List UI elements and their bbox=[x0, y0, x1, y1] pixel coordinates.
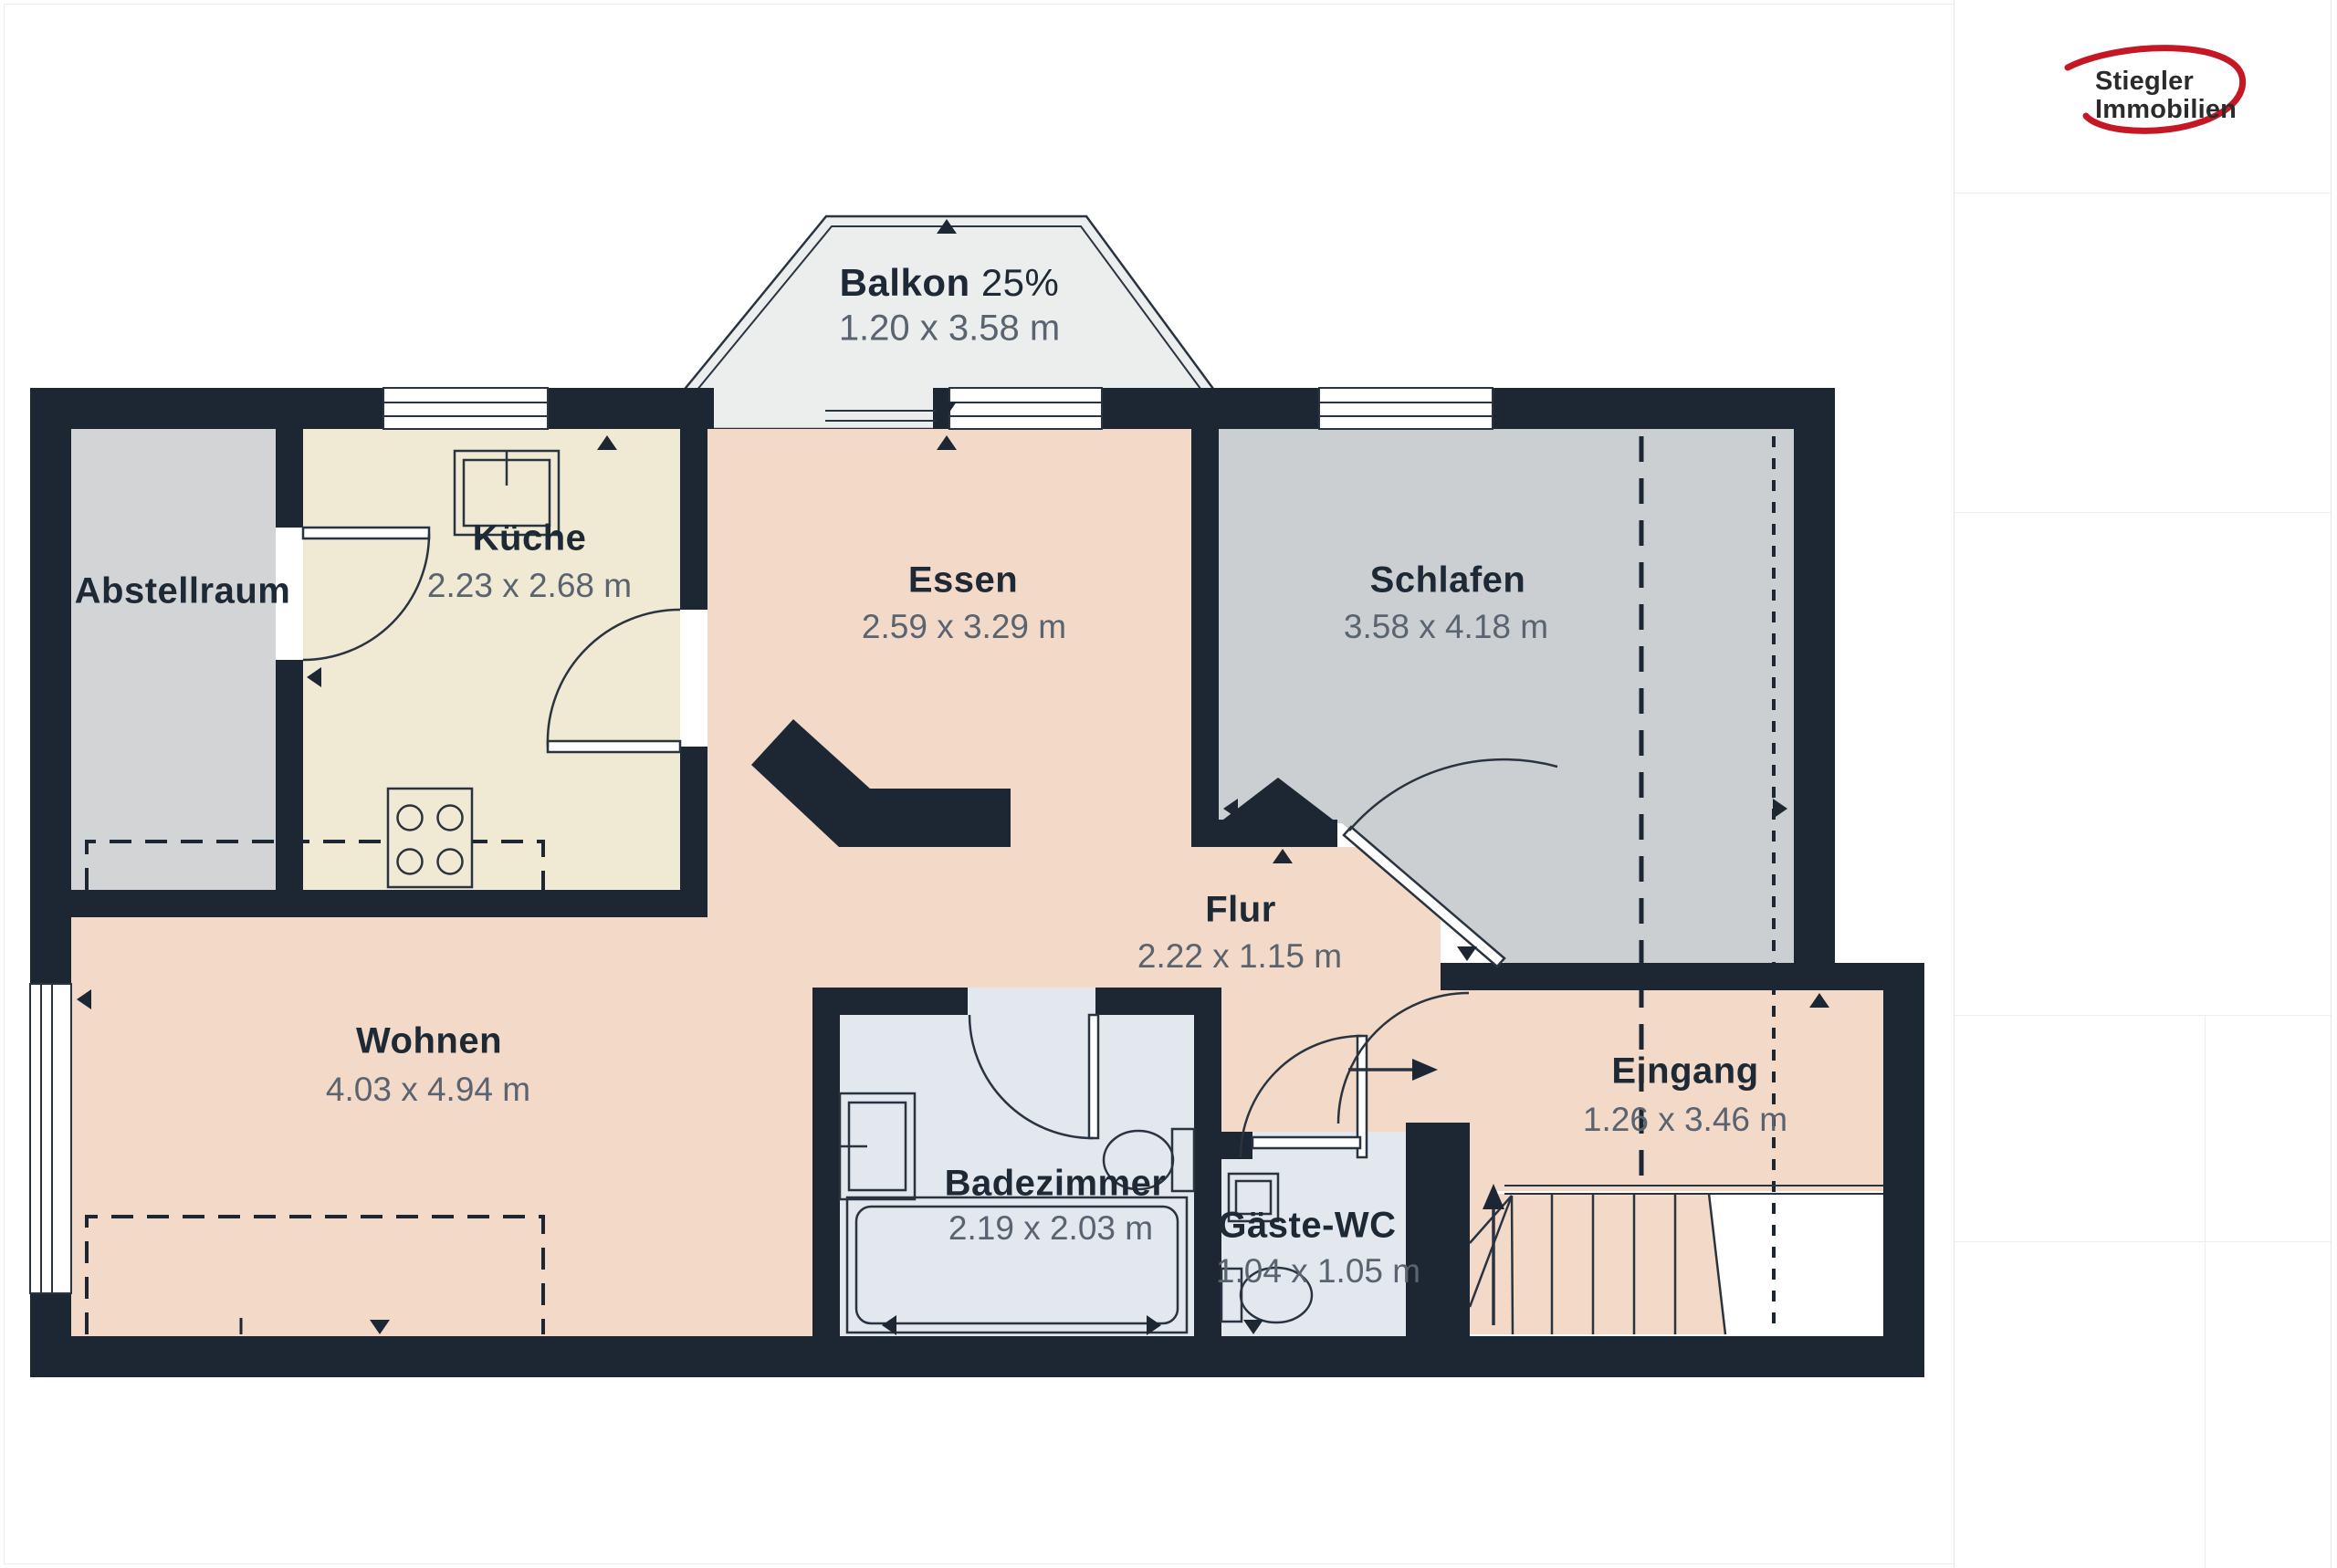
room-dim-schlafen: 3.58 x 4.18 m bbox=[1344, 608, 1548, 646]
stiegler-immobilien-logo: Stiegler Immobilien bbox=[2059, 27, 2278, 155]
wall-wc-stair bbox=[1406, 1123, 1470, 1336]
wall-right-entry bbox=[1883, 963, 1924, 1377]
room-label-kueche: Küche bbox=[473, 518, 587, 559]
wall-kitchen-bottom bbox=[71, 890, 707, 917]
logo-text-line1: Stiegler bbox=[2095, 68, 2237, 96]
room-dim-balkon: 1.20 x 3.58 m bbox=[839, 308, 1060, 350]
floorplan-page: Balkon 25% 1.20 x 3.58 m Abstellraum Küc… bbox=[0, 0, 2337, 1568]
room-label-abstellraum: Abstellraum bbox=[75, 571, 291, 612]
wall-bath-top-right bbox=[1095, 988, 1221, 1015]
wall-storage-kitchen-b bbox=[276, 660, 303, 890]
bedroom-window bbox=[1319, 388, 1493, 429]
sidebar-vertical-divider bbox=[2205, 1015, 2206, 1568]
room-dim-kueche: 2.23 x 2.68 m bbox=[427, 567, 632, 605]
living-window bbox=[30, 984, 71, 1293]
room-label-balkon: Balkon 25% bbox=[840, 261, 1060, 305]
room-dim-essen: 2.59 x 3.29 m bbox=[862, 608, 1066, 646]
stair-winder bbox=[1512, 1196, 1513, 1334]
wall-storage-kitchen-a bbox=[276, 429, 303, 528]
wall-top-left bbox=[30, 388, 714, 429]
sidebar-divider bbox=[1954, 193, 2331, 193]
wall-bedroom-bottom bbox=[1497, 963, 1924, 990]
room-dim-badezimmer: 2.19 x 2.03 m bbox=[948, 1209, 1153, 1248]
logo-text-line2: Immobilien bbox=[2095, 96, 2237, 124]
kitchen-window bbox=[383, 388, 548, 429]
wall-kitchen-dining-b bbox=[680, 747, 707, 890]
bathroom-floor bbox=[812, 988, 1221, 1336]
living-floor bbox=[71, 917, 812, 1336]
wall-kitchen-dining-a bbox=[680, 429, 707, 610]
entry-door-floor bbox=[1441, 990, 1470, 1123]
room-label-eingang: Eingang bbox=[1611, 1051, 1758, 1092]
dining-floor bbox=[707, 429, 1191, 988]
sidebar-divider bbox=[1954, 1015, 2331, 1016]
room-label-gaeste-wc: Gäste-WC bbox=[1218, 1206, 1396, 1247]
dining-window bbox=[949, 388, 1102, 429]
room-dim-wohnen: 4.03 x 4.94 m bbox=[326, 1071, 530, 1109]
wall-wc-top bbox=[1221, 1132, 1252, 1159]
stair-floor bbox=[1470, 1194, 1725, 1334]
logo-text: Stiegler Immobilien bbox=[2095, 68, 2237, 125]
wall-bath-top-left bbox=[812, 988, 968, 1015]
room-dim-gaeste-wc: 1.04 x 1.05 m bbox=[1216, 1252, 1420, 1291]
wall-bath-left bbox=[812, 988, 840, 1336]
room-label-wohnen: Wohnen bbox=[356, 1021, 502, 1062]
room-label-flur: Flur bbox=[1205, 890, 1276, 931]
wall-dining-bedroom bbox=[1191, 429, 1219, 826]
storage-floor bbox=[71, 429, 276, 890]
wall-hall-top bbox=[1191, 820, 1337, 847]
sidebar-divider bbox=[1954, 1241, 2331, 1242]
wall-entry-jamb bbox=[1441, 963, 1497, 990]
stair-void bbox=[1709, 1194, 1883, 1334]
room-label-essen: Essen bbox=[908, 560, 1018, 601]
wall-right-main bbox=[1794, 388, 1835, 990]
room-dim-flur: 2.22 x 1.15 m bbox=[1137, 937, 1342, 976]
kitchen-floor bbox=[303, 429, 680, 890]
wall-bottom bbox=[30, 1336, 1924, 1377]
sidebar-divider bbox=[1954, 512, 2331, 513]
room-dim-eingang: 1.26 x 3.46 m bbox=[1583, 1101, 1787, 1139]
stove bbox=[388, 789, 472, 887]
room-label-schlafen: Schlafen bbox=[1370, 560, 1526, 601]
room-label-badezimmer: Badezimmer bbox=[945, 1164, 1167, 1205]
right-sidebar bbox=[1954, 0, 2332, 1568]
